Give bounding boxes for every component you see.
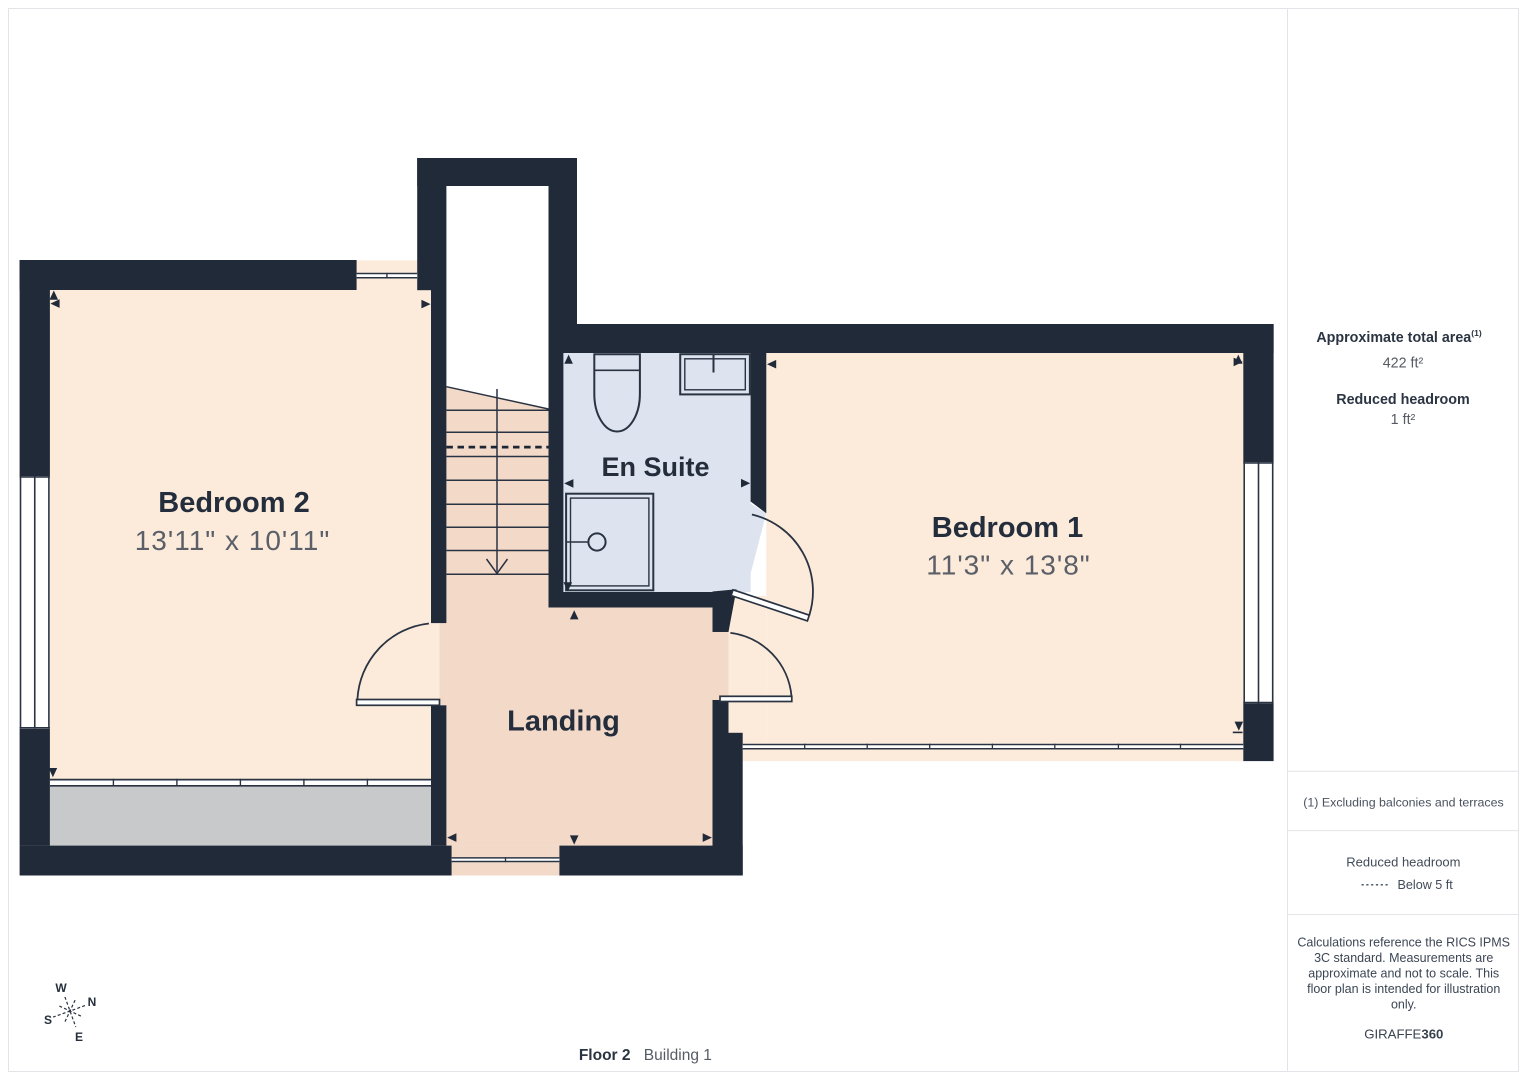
svg-text:13'11" x 10'11": 13'11" x 10'11" xyxy=(135,525,331,556)
svg-text:Bedroom 1: Bedroom 1 xyxy=(932,512,1083,544)
svg-text:3C standard. Measurements are: 3C standard. Measurements are xyxy=(1314,951,1493,965)
svg-text:floor plan is intended for ill: floor plan is intended for illustration xyxy=(1307,982,1500,996)
svg-text:Building 1: Building 1 xyxy=(644,1047,712,1064)
svg-text:(1) Excluding balconies and te: (1) Excluding balconies and terraces xyxy=(1303,796,1503,810)
svg-text:422 ft²: 422 ft² xyxy=(1383,356,1424,372)
svg-text:Approximate total area(1): Approximate total area(1) xyxy=(1316,328,1481,346)
svg-text:Landing: Landing xyxy=(507,706,620,738)
svg-text:11'3" x 13'8": 11'3" x 13'8" xyxy=(926,550,1090,581)
svg-text:N: N xyxy=(88,995,97,1009)
svg-text:1 ft²: 1 ft² xyxy=(1391,412,1416,428)
svg-text:Bedroom 2: Bedroom 2 xyxy=(158,487,309,519)
svg-text:GIRAFFE360: GIRAFFE360 xyxy=(1364,1027,1443,1042)
svg-text:Reduced headroom: Reduced headroom xyxy=(1336,392,1469,408)
svg-text:W: W xyxy=(55,981,67,995)
svg-text:Floor 2: Floor 2 xyxy=(579,1047,631,1064)
svg-text:Calculations reference the RIC: Calculations reference the RICS IPMS xyxy=(1297,936,1510,950)
svg-text:E: E xyxy=(75,1030,83,1044)
svg-text:S: S xyxy=(44,1013,52,1027)
svg-text:approximate and not to scale.: approximate and not to scale. This xyxy=(1308,967,1499,981)
svg-text:En Suite: En Suite xyxy=(601,452,709,482)
svg-text:only.: only. xyxy=(1391,997,1416,1011)
svg-text:Below 5 ft: Below 5 ft xyxy=(1398,878,1454,892)
svg-text:Reduced headroom: Reduced headroom xyxy=(1346,855,1460,870)
